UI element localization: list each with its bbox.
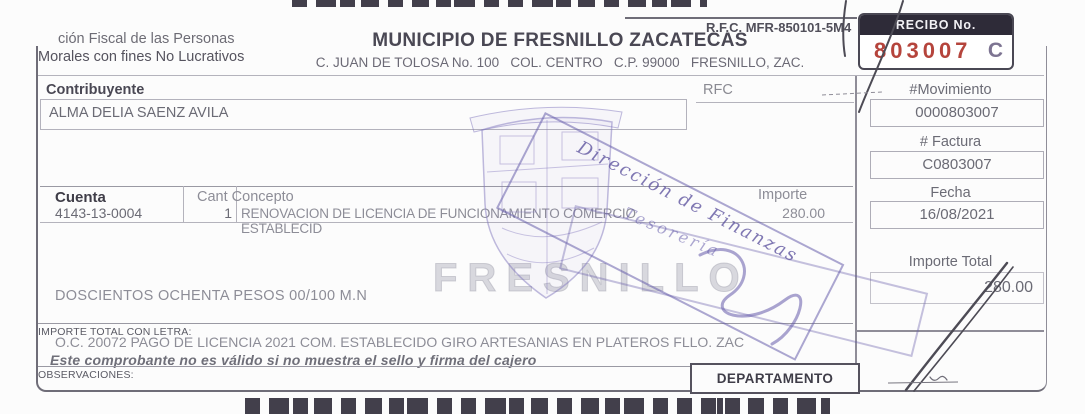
contribuyente-value: ALMA DELIA SAENZ AVILA <box>49 105 686 121</box>
factura-value: C0803007 <box>870 151 1044 179</box>
table-col-divider-1 <box>183 186 184 222</box>
observaciones-label: OBSERVACIONES: <box>38 369 134 381</box>
departamento-box: DEPARTAMENTO <box>690 363 860 394</box>
col-header-importe: Importe <box>758 187 807 203</box>
fecha-label: Fecha <box>856 185 1045 201</box>
row-cuenta: 4143-13-0004 <box>55 205 142 221</box>
departamento-label: DEPARTAMENTO <box>717 371 834 386</box>
oc-description: O.C. 20072 PAGO DE LICENCIA 2021 COM. ES… <box>55 334 744 350</box>
contribuyente-field: ALMA DELIA SAENZ AVILA <box>40 99 687 130</box>
movimiento-label: #Movimiento <box>856 82 1045 98</box>
fecha-value: 16/08/2021 <box>870 201 1044 229</box>
header-divider <box>38 75 1044 76</box>
top-rule <box>625 17 857 19</box>
importe-total-label: Importe Total <box>856 254 1045 270</box>
rfc-field-label: RFC <box>703 82 733 98</box>
amount-in-words: DOSCIENTOS OCHENTA PESOS 00/100 M.N <box>55 288 367 304</box>
row-cant: 1 <box>200 205 232 221</box>
col-header-cuenta: Cuenta <box>55 189 106 206</box>
rfc-field-line <box>696 102 854 103</box>
rfc-header: R.F.C. MFR-850101-5M4 <box>706 20 851 35</box>
top-cutoff-text <box>292 0 707 7</box>
scanned-receipt: ción Fiscal de las Personas Morales con … <box>0 0 1085 414</box>
table-top-rule <box>40 186 853 187</box>
footer-rule-2 <box>38 366 690 367</box>
col-header-cant-concepto: Cant Concepto <box>197 189 294 205</box>
bottom-cutoff-text <box>245 398 830 414</box>
factura-label: # Factura <box>856 134 1045 150</box>
movimiento-value: 0000803007 <box>870 99 1044 127</box>
recibo-label: RECIBO No. <box>860 15 1012 35</box>
contribuyente-label: Contribuyente <box>46 82 144 98</box>
